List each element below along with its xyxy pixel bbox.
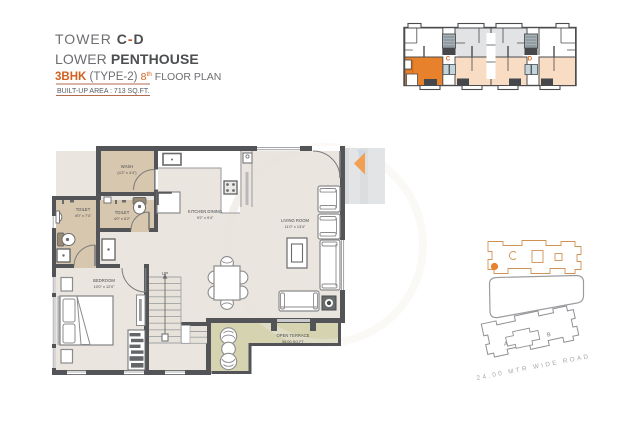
svg-text:TOILET: TOILET (115, 210, 130, 215)
svg-text:BEDROOM: BEDROOM (93, 278, 115, 283)
svg-text:OPEN TERRACE: OPEN TERRACE (277, 333, 310, 338)
svg-text:WASH: WASH (121, 164, 133, 169)
svg-text:TOILET: TOILET (76, 207, 91, 212)
svg-text:LIVING ROOM: LIVING ROOM (281, 218, 309, 223)
svg-text:10'0" x 12'0": 10'0" x 12'0" (94, 285, 115, 289)
svg-text:LOWER PENTHOUSE: LOWER PENTHOUSE (55, 51, 199, 67)
svg-text:3BHK (TYPE-2) 8th FLOOR PLAN: 3BHK (TYPE-2) 8th FLOOR PLAN (55, 71, 221, 83)
svg-text:C: C (446, 57, 451, 63)
svg-text:9'2" x 9'4": 9'2" x 9'4" (197, 216, 214, 220)
svg-text:4'0" x 6'2": 4'0" x 6'2" (114, 217, 131, 221)
svg-text:4'0" x 7'4": 4'0" x 7'4" (75, 214, 92, 218)
svg-text:(4'2" x 4'4"): (4'2" x 4'4") (117, 171, 137, 175)
svg-text:UP: UP (162, 271, 168, 276)
svg-text:BUILT-UP AREA : 713 SQ.FT.: BUILT-UP AREA : 713 SQ.FT. (57, 88, 149, 95)
svg-text:KITCHEN DINING: KITCHEN DINING (188, 209, 222, 214)
svg-text:TOWER C-D: TOWER C-D (55, 31, 145, 47)
svg-text:D: D (528, 57, 533, 63)
svg-text:56.00 SQ.FT: 56.00 SQ.FT (282, 340, 304, 344)
svg-text:11'0" x 13'4": 11'0" x 13'4" (285, 225, 306, 229)
